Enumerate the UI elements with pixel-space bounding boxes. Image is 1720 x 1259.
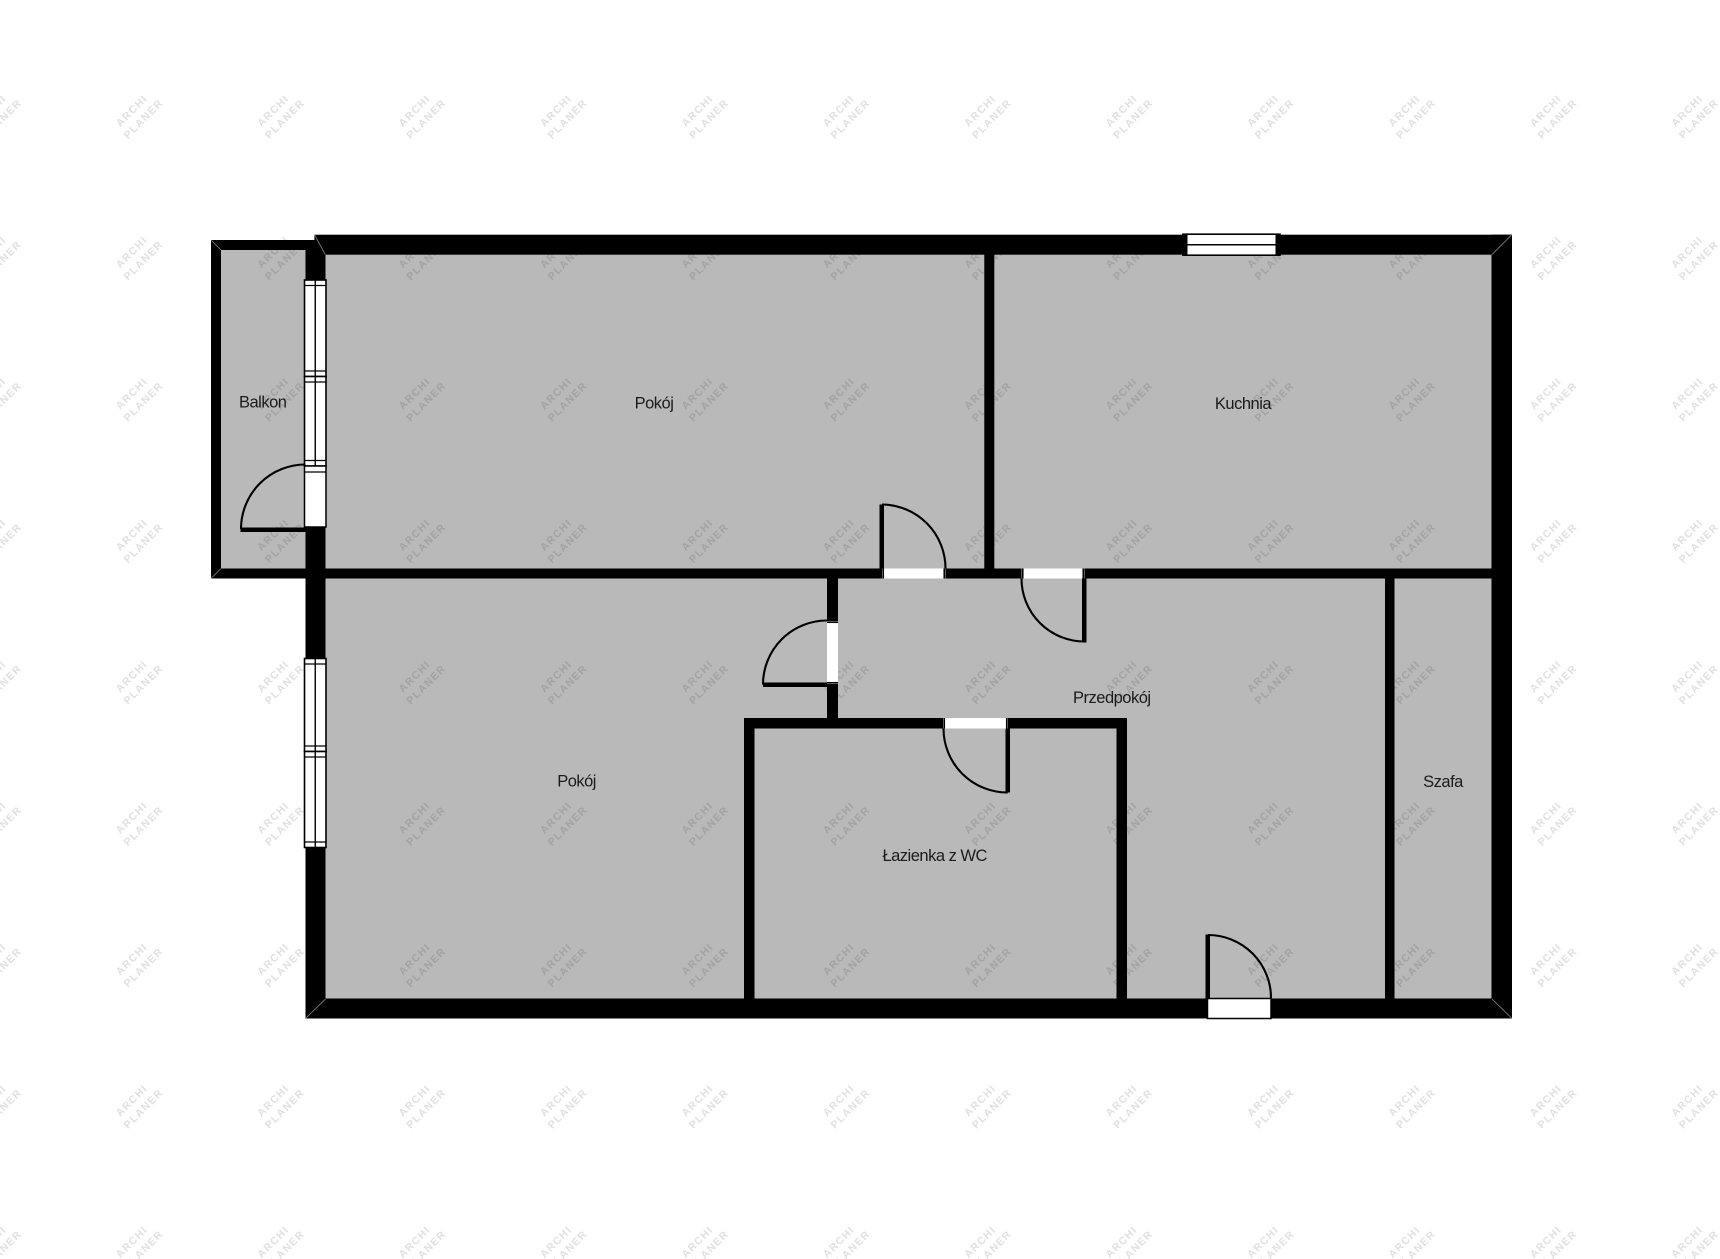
svg-text:Balkon: Balkon: [239, 394, 287, 412]
svg-text:Przedpokój: Przedpokój: [1073, 689, 1151, 707]
svg-text:Kuchnia: Kuchnia: [1215, 395, 1272, 413]
svg-text:Łazienka z WC: Łazienka z WC: [882, 847, 987, 865]
svg-text:Pokój: Pokój: [635, 395, 674, 413]
svg-text:Pokój: Pokój: [557, 772, 596, 790]
svg-text:Szafa: Szafa: [1423, 773, 1464, 791]
